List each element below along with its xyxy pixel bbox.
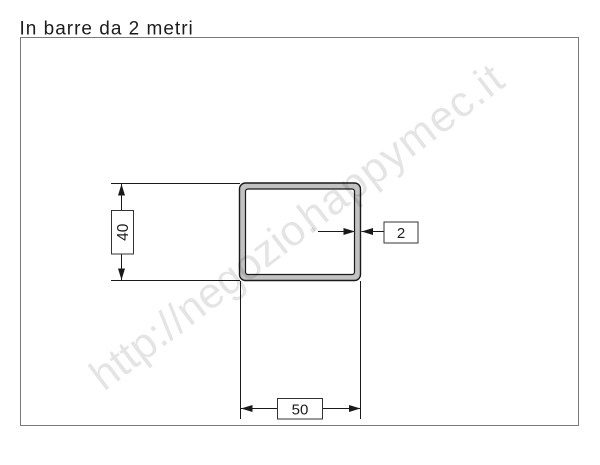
svg-text:happymec.it: happymec.it — [289, 54, 514, 241]
svg-text:In barre da 2 metri: In barre da 2 metri — [20, 19, 194, 40]
svg-text:50: 50 — [292, 401, 309, 418]
svg-text:2: 2 — [397, 225, 405, 242]
svg-text:40: 40 — [115, 223, 132, 241]
